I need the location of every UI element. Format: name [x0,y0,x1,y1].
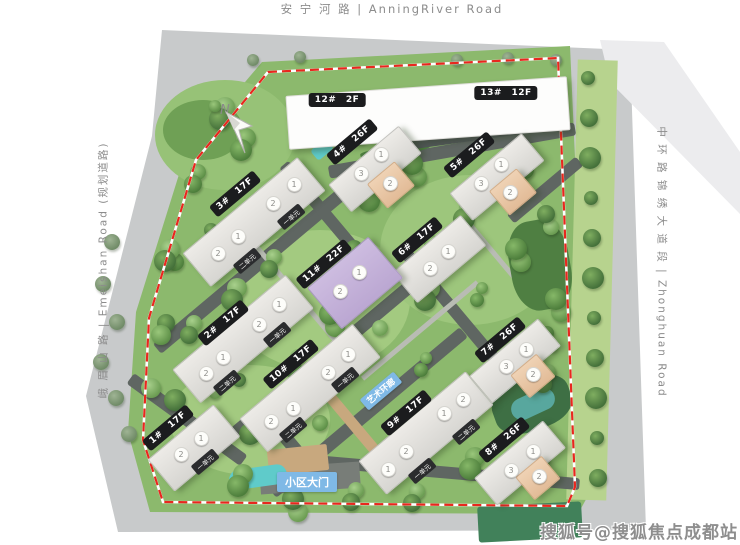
unit-circle: 1 [374,147,389,162]
unit-circle: 2 [211,246,226,261]
unit-circle: 2 [264,414,279,429]
watermark: 搜狐号@搜狐焦点成都站 [540,518,738,543]
road-label-top: 安 宁 河 路 | AnningRiver Road [281,1,504,17]
unit-circle: 2 [423,261,438,276]
unit-circle: 1 [272,297,287,312]
unit-circle: 1 [441,244,456,259]
unit-circle: 3 [504,463,519,478]
gate-label: 小区大门 [277,472,337,492]
unit-circle: 3 [474,176,489,191]
unit-circle: 2 [456,392,471,407]
road-label-right: 中 环 路 锦 绣 大 道 段 | Zhonghuan Road [655,126,670,397]
unit-circle: 1 [519,342,534,357]
unit-circle: 3 [499,359,514,374]
unit-circle: 1 [194,431,209,446]
unit-circle: 2 [266,196,281,211]
unit-circle: 2 [532,469,547,484]
unit-circle: 2 [174,447,189,462]
unit-circle: 1 [352,265,367,280]
unit-circle: 1 [231,229,246,244]
unit-circle: 1 [437,406,452,421]
unit-circle: 1 [286,401,301,416]
unit-circle: 3 [354,166,369,181]
unit-circle: 2 [503,185,518,200]
road-label-left: 峨 眉 山 路 | Emeishan Road (规划道路) [96,142,111,399]
building-label: 12# 2F [309,93,366,107]
unit-circle: 2 [383,176,398,191]
building-label: 13# 12F [474,86,537,100]
unit-circle: 2 [399,444,414,459]
unit-circle: 1 [526,444,541,459]
unit-circle: 1 [494,157,509,172]
unit-circle: 2 [333,284,348,299]
site-plan: 12# 2F13# 12F3# 17F1212一单元二单元4# 26F1325#… [0,0,740,545]
compass-icon: N [212,96,260,160]
unit-circle: 2 [526,367,541,382]
unit-circle: 1 [216,350,231,365]
unit-circle: 1 [287,177,302,192]
unit-circle: 1 [341,347,356,362]
unit-circle: 2 [321,365,336,380]
unit-circle: 2 [252,317,267,332]
unit-circle: 1 [381,462,396,477]
unit-circle: 2 [199,366,214,381]
